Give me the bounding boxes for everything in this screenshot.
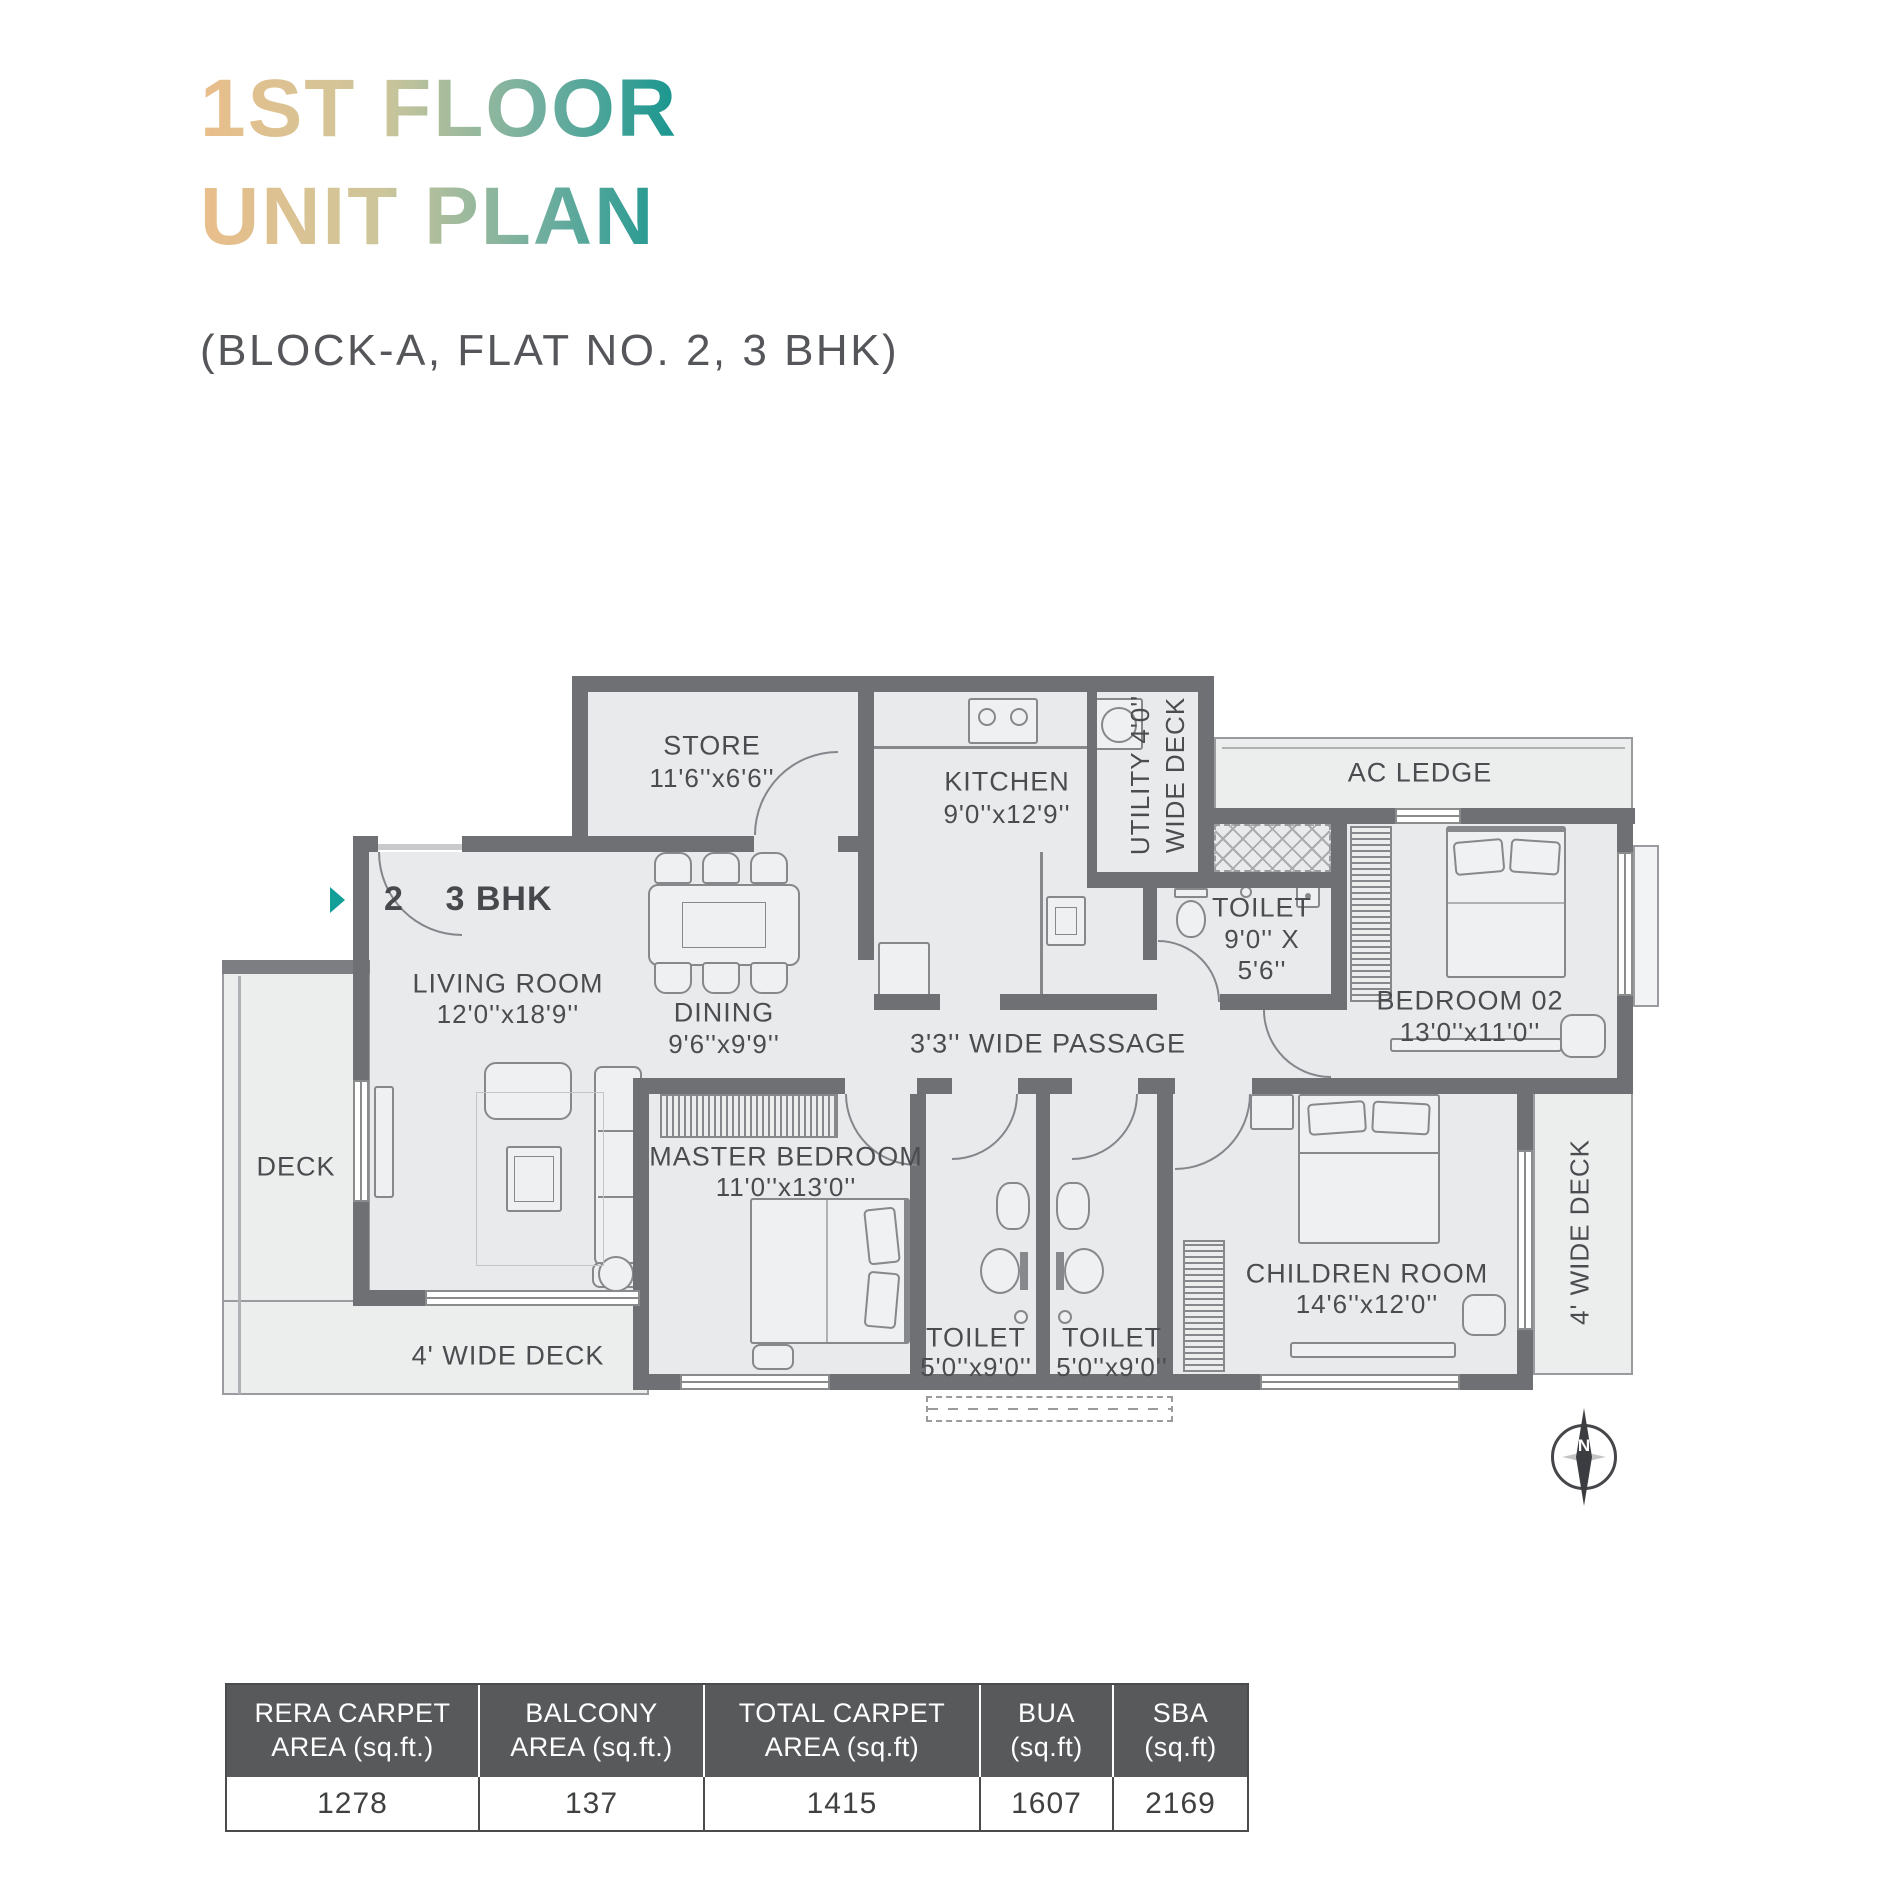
room-label-master: MASTER BEDROOM: [649, 1144, 923, 1171]
wall: [633, 1078, 649, 1390]
title-line-2: UNIT PLAN: [200, 163, 678, 271]
master-bed-headboard: [904, 1200, 908, 1342]
toilet2-washbasin-icon: [1056, 1182, 1090, 1230]
bedroom02-outer-ledge: [1633, 845, 1659, 1007]
master-nightstand: [752, 1344, 794, 1370]
room-dims-master: 11'0''x13'0'': [716, 1174, 857, 1200]
children-wardrobe: [1183, 1240, 1225, 1372]
deck-left-parapet: [222, 960, 370, 974]
toilet2-wc-icon: [1064, 1248, 1104, 1294]
toilet2-wc-tank: [1056, 1252, 1064, 1290]
room-dims-toilet-attached-2: 5'6'': [1238, 957, 1287, 983]
wall: [1087, 692, 1097, 880]
table-value-cell: 1607: [981, 1777, 1114, 1830]
deck-left-inner-line: [238, 976, 241, 1394]
room-dims-kitchen: 9'0''x12'9'': [943, 801, 1070, 827]
pillow: [1509, 838, 1561, 875]
wall: [353, 836, 369, 1080]
title-line-1: 1ST FLOOR: [200, 55, 678, 163]
wall: [633, 1078, 845, 1094]
service-duct-hatch: [926, 1396, 1173, 1422]
table-header-cell: BALCONYAREA (sq.ft.): [480, 1685, 705, 1777]
children-bed-fold-line: [1300, 1152, 1438, 1154]
kitchen-cabinet: [878, 942, 930, 998]
wall: [1143, 888, 1157, 960]
table-value-cell: 137: [480, 1777, 705, 1830]
toilet-attached-wc-bowl: [1176, 900, 1206, 938]
deck-right-text: 4' WIDE DECK: [1562, 1139, 1597, 1325]
label-passage: 3'3'' WIDE PASSAGE: [910, 1031, 1186, 1058]
dining-chair: [654, 852, 692, 884]
wall: [858, 692, 874, 960]
wall: [353, 1290, 425, 1306]
room-label-ac-ledge: AC LEDGE: [1348, 760, 1493, 787]
window: [680, 1374, 830, 1390]
wall: [1198, 676, 1214, 880]
label-deck-right: 4' WIDE DECK: [1562, 1139, 1597, 1325]
room-dims-toilet2: 5'0''x9'0'': [1056, 1354, 1168, 1380]
entrance-door-leaf: [378, 844, 462, 850]
wall: [1138, 1078, 1175, 1094]
room-dims-living: 12'0''x18'9'': [437, 1001, 580, 1027]
bedroom02-bed-fold-line: [1448, 902, 1564, 904]
unit-type: 3 BHK: [445, 882, 552, 916]
wall: [1018, 1078, 1072, 1094]
toilet1-washbasin-icon: [996, 1182, 1030, 1230]
wall: [1000, 994, 1157, 1010]
dining-chair: [702, 962, 740, 994]
room-label-utility: UTILITY 4'0'' WIDE DECK: [1123, 695, 1193, 855]
room-label-toilet1: TOILET: [926, 1325, 1026, 1352]
room-label-store: STORE: [663, 733, 761, 760]
table-value-cell: 2169: [1114, 1777, 1247, 1830]
wall: [588, 836, 754, 852]
subtitle: (BLOCK-A, FLAT NO. 2, 3 BHK): [200, 326, 899, 376]
room-label-children: CHILDREN ROOM: [1246, 1261, 1489, 1288]
table-header-cell: BUA(sq.ft): [981, 1685, 1114, 1777]
kitchen-counter-line: [874, 746, 1087, 749]
table-header-cell: TOTAL CARPETAREA (sq.ft): [705, 1685, 981, 1777]
wall: [1517, 1094, 1533, 1150]
dining-ch air: [702, 852, 740, 884]
wall: [1461, 808, 1635, 824]
children-side-table: [1250, 1094, 1294, 1130]
master-bed-fold-line: [826, 1200, 828, 1342]
room-dims-toilet-attached-1: 9'0'' X: [1224, 926, 1299, 952]
ac-ledge-inner-line: [1222, 747, 1625, 749]
ac-duct-hatch: [1214, 824, 1331, 872]
kitchen-counter-right-line: [1040, 852, 1043, 994]
area-table: RERA CARPETAREA (sq.ft.)BALCONYAREA (sq.…: [225, 1683, 1249, 1832]
wall: [1087, 872, 1345, 888]
unit-number: 2: [384, 882, 404, 916]
room-dims-store: 11'6''x6'6'': [649, 765, 774, 791]
wall: [572, 676, 1214, 692]
wall: [1220, 994, 1331, 1010]
wall: [874, 994, 940, 1010]
window: [1517, 1150, 1533, 1330]
dining-chair: [750, 852, 788, 884]
living-rug: [476, 1092, 604, 1266]
table-value-row: 1278137141516072169: [227, 1777, 1247, 1830]
wall: [1517, 1330, 1533, 1387]
label-deck-left: DECK: [256, 1154, 335, 1181]
wall: [1617, 808, 1633, 852]
compass-north-needle-icon: [1576, 1408, 1592, 1506]
room-dims-children: 14'6''x12'0'': [1296, 1291, 1439, 1317]
room-dims-bedroom02: 13'0''x11'0'': [1400, 1019, 1541, 1045]
window: [353, 1080, 369, 1202]
wall: [838, 836, 858, 852]
toilet-attached-wc-icon: [1174, 888, 1208, 898]
bedroom02-bed-headboard: [1448, 828, 1564, 832]
stove-icon: [968, 698, 1038, 744]
children-chair: [1462, 1294, 1506, 1336]
wall: [462, 836, 588, 852]
room-label-toilet2: TOILET: [1062, 1325, 1162, 1352]
wall: [633, 1374, 680, 1390]
table-value-cell: 1278: [227, 1777, 480, 1830]
window: [1260, 1374, 1460, 1390]
pillow: [1371, 1101, 1431, 1136]
toilet1-wc-icon: [980, 1248, 1020, 1294]
entrance-arrow-icon: [330, 887, 345, 913]
window: [425, 1290, 640, 1306]
window: [1395, 808, 1461, 824]
wall: [1207, 808, 1395, 824]
wall: [1331, 808, 1347, 1010]
pillow: [1453, 838, 1506, 876]
page-title: 1ST FLOOR UNIT PLAN: [200, 55, 678, 271]
bedroom02-chair: [1560, 1014, 1606, 1058]
table-value-cell: 1415: [705, 1777, 981, 1830]
table-header-row: RERA CARPETAREA (sq.ft.)BALCONYAREA (sq.…: [227, 1685, 1247, 1777]
room-dims-dining: 9'6''x9'9'': [668, 1031, 780, 1057]
pillow: [863, 1206, 901, 1265]
room-label-toilet-attached: TOILET: [1212, 895, 1312, 922]
room-label-bedroom02: BEDROOM 02: [1376, 988, 1563, 1015]
compass-north-label: N: [1578, 1436, 1590, 1456]
window: [1617, 852, 1633, 996]
toilet1-wc-tank: [1020, 1252, 1028, 1290]
utility-label-line1: UTILITY 4'0'': [1123, 695, 1158, 855]
wall: [1036, 1094, 1050, 1390]
wall: [572, 676, 588, 852]
wall: [1173, 1374, 1260, 1390]
table-header-cell: SBA(sq.ft): [1114, 1685, 1247, 1777]
pillow: [864, 1271, 901, 1330]
dining-table: [648, 884, 800, 966]
room-dims-toilet1: 5'0''x9'0'': [920, 1354, 1032, 1380]
room-label-dining: DINING: [674, 1000, 775, 1027]
pillow: [1307, 1100, 1367, 1136]
children-desk: [1290, 1342, 1456, 1358]
wall: [917, 1078, 952, 1094]
wall: [830, 1374, 926, 1390]
floor-plan-page: 1ST FLOOR UNIT PLAN (BLOCK-A, FLAT NO. 2…: [0, 0, 1900, 1900]
kitchen-sink-icon: [1046, 896, 1086, 946]
dining-chair: [654, 962, 692, 994]
label-deck-bottom: 4' WIDE DECK: [412, 1343, 605, 1370]
table-header-cell: RERA CARPETAREA (sq.ft.): [227, 1685, 480, 1777]
bedroom02-wardrobe: [1350, 826, 1392, 1002]
room-label-living: LIVING ROOM: [412, 971, 603, 998]
wall: [1252, 1078, 1633, 1094]
room-label-kitchen: KITCHEN: [944, 769, 1070, 796]
master-wardrobe: [660, 1094, 838, 1138]
dining-chair: [750, 962, 788, 994]
utility-label-line2: WIDE DECK: [1158, 695, 1193, 855]
tv-console: [374, 1086, 394, 1198]
